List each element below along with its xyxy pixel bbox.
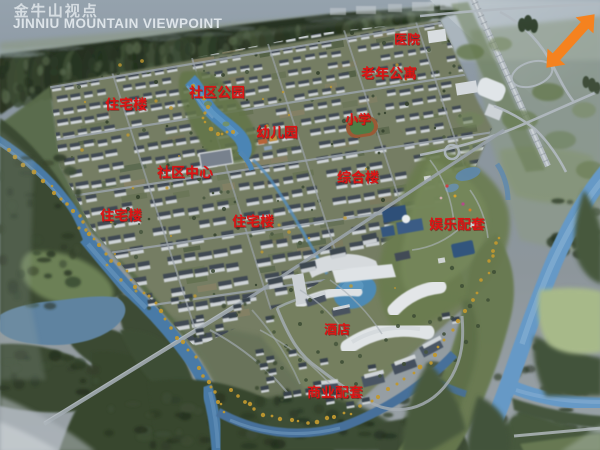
svg-text:JINNIU MOUNTAIN VIEWPOINT: JINNIU MOUNTAIN VIEWPOINT	[13, 16, 223, 31]
